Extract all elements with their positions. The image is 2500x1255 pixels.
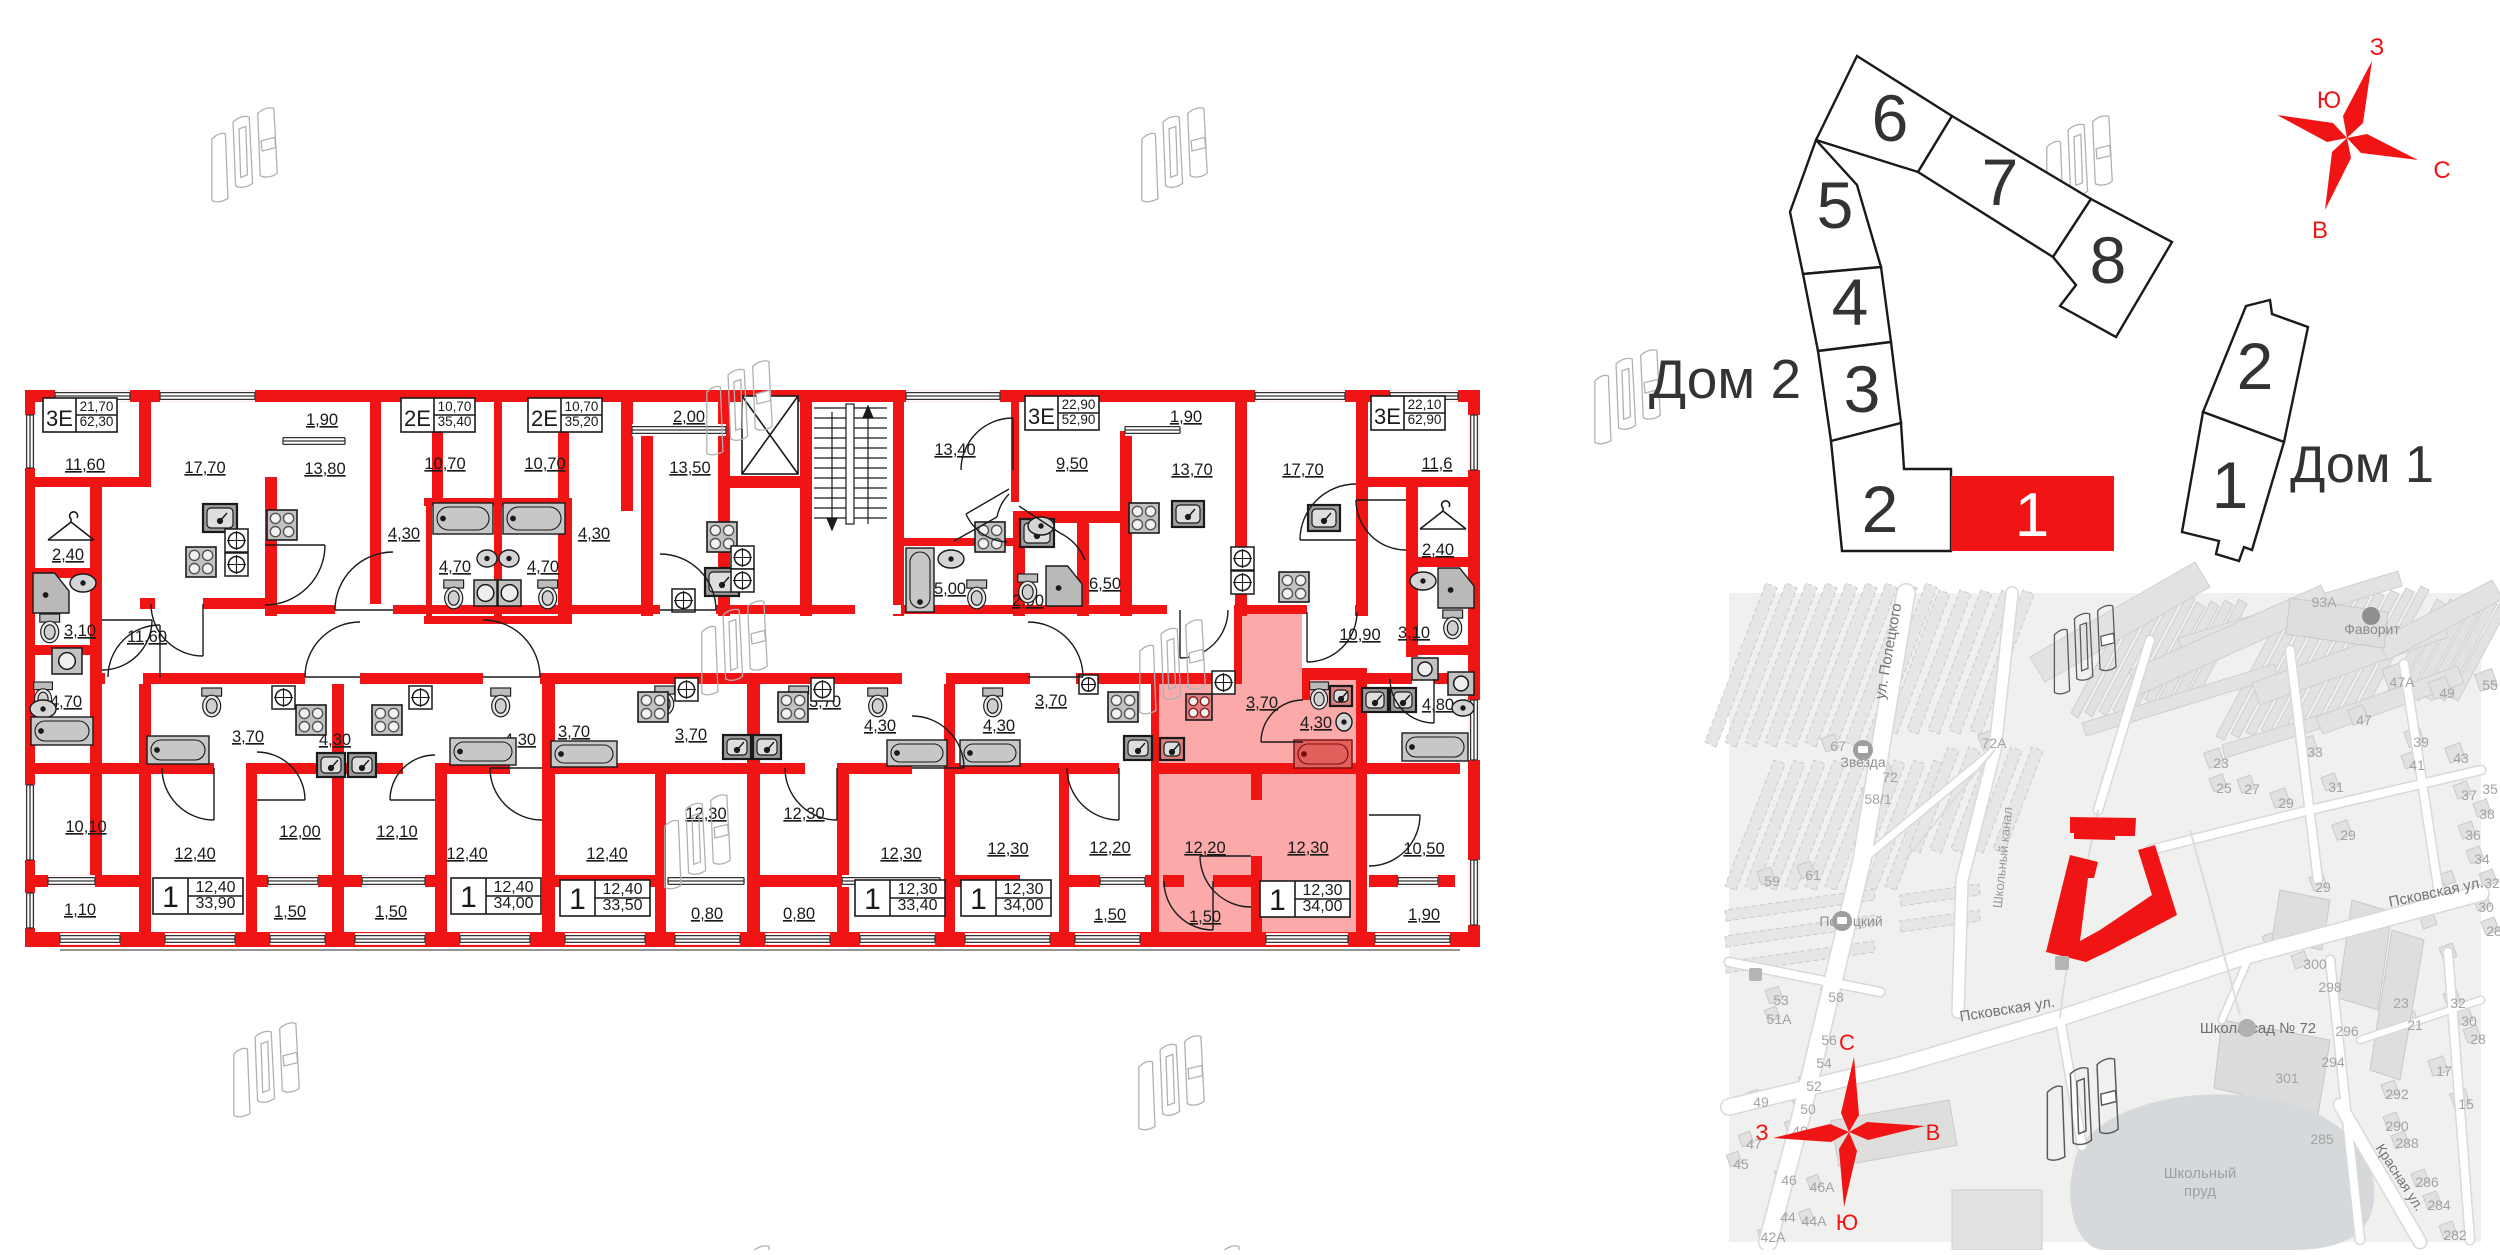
svg-text:93А: 93А [2312,594,2338,610]
svg-text:17,70: 17,70 [1282,461,1323,479]
svg-text:28: 28 [2486,923,2500,939]
svg-text:Дом 2: Дом 2 [1649,348,1801,410]
svg-text:1,50: 1,50 [1094,906,1126,924]
svg-text:С: С [1839,1030,1855,1055]
svg-text:5,00: 5,00 [934,580,966,598]
svg-text:56: 56 [1821,1032,1837,1048]
svg-text:46: 46 [1781,1172,1797,1188]
svg-text:25: 25 [2216,780,2232,796]
svg-text:1: 1 [460,881,477,914]
svg-text:1,90: 1,90 [306,411,338,429]
svg-text:Школа-сад № 72: Школа-сад № 72 [2200,1020,2316,1037]
svg-text:1,90: 1,90 [1408,906,1440,924]
svg-text:10,70: 10,70 [424,455,465,473]
svg-text:298: 298 [2318,979,2342,995]
svg-text:50: 50 [1800,1101,1816,1117]
svg-text:4,30: 4,30 [1300,714,1332,732]
svg-text:10,70: 10,70 [438,399,472,414]
svg-text:58: 58 [1828,989,1844,1005]
svg-text:12,40: 12,40 [602,881,642,898]
svg-text:47А: 47А [2390,674,2416,690]
svg-text:3,70: 3,70 [558,723,590,741]
svg-text:22,10: 22,10 [1408,397,1442,412]
svg-text:43: 43 [2453,750,2469,766]
svg-text:С: С [2433,157,2450,184]
svg-text:292: 292 [2385,1086,2409,1102]
svg-text:286: 286 [2415,1174,2439,1190]
svg-text:33: 33 [2307,744,2323,760]
svg-text:72: 72 [1882,769,1898,785]
svg-text:7: 7 [1982,145,2019,219]
svg-text:27: 27 [2244,781,2260,797]
svg-text:294: 294 [2321,1054,2345,1070]
svg-text:61: 61 [1805,867,1821,883]
svg-text:290: 290 [2385,1118,2409,1134]
svg-text:1,50: 1,50 [274,903,306,921]
svg-text:Ю: Ю [1836,1210,1858,1235]
svg-text:46А: 46А [1810,1179,1836,1195]
svg-text:12,00: 12,00 [279,823,320,841]
svg-text:23: 23 [2393,995,2409,1011]
svg-text:21: 21 [2407,1017,2423,1033]
svg-text:22,90: 22,90 [1062,397,1096,412]
svg-text:34,00: 34,00 [1302,898,1342,915]
svg-text:1: 1 [569,883,586,916]
svg-text:Школьный: Школьный [2164,1165,2237,1182]
svg-text:3Е: 3Е [1028,404,1055,429]
svg-text:62,30: 62,30 [80,414,114,429]
svg-text:11,60: 11,60 [65,456,105,474]
svg-text:35,20: 35,20 [565,414,599,429]
svg-text:17: 17 [2436,1063,2452,1079]
svg-text:10,50: 10,50 [1403,840,1444,858]
svg-text:288: 288 [2395,1135,2419,1151]
svg-text:29: 29 [2315,879,2331,895]
svg-text:54: 54 [1816,1055,1832,1071]
svg-text:21,70: 21,70 [80,399,114,414]
svg-text:2Е: 2Е [404,406,431,431]
svg-text:29: 29 [2340,827,2356,843]
svg-text:12,40: 12,40 [174,845,215,863]
svg-text:29: 29 [2278,795,2294,811]
svg-text:45: 45 [1733,1156,1749,1172]
svg-text:72А: 72А [1982,735,2008,751]
svg-text:41: 41 [2409,757,2425,773]
svg-text:10,10: 10,10 [65,818,106,836]
svg-text:2: 2 [2237,329,2274,403]
svg-text:12,40: 12,40 [586,845,627,863]
svg-text:36: 36 [2465,827,2481,843]
svg-text:1,50: 1,50 [1189,908,1221,926]
svg-text:1,90: 1,90 [1170,408,1202,426]
svg-text:62,90: 62,90 [1408,412,1442,427]
svg-text:11,6: 11,6 [1422,455,1453,473]
svg-text:3,70: 3,70 [1246,694,1278,712]
svg-text:3,10: 3,10 [1398,624,1430,642]
svg-text:8: 8 [2090,223,2127,297]
svg-text:3,70: 3,70 [232,728,264,746]
svg-text:3,70: 3,70 [1035,692,1067,710]
svg-text:12,20: 12,20 [1184,839,1225,857]
svg-text:42А: 42А [1761,1229,1787,1245]
svg-text:53: 53 [1773,992,1789,1008]
svg-text:2,40: 2,40 [52,546,84,564]
svg-text:28: 28 [2470,1031,2486,1047]
svg-text:3,70: 3,70 [675,726,707,744]
svg-text:13,50: 13,50 [669,459,710,477]
svg-text:301: 301 [2275,1070,2299,1086]
svg-text:3Е: 3Е [1374,404,1401,429]
svg-text:44: 44 [1780,1209,1796,1225]
svg-text:31: 31 [2328,779,2344,795]
svg-text:2: 2 [1862,472,1899,546]
svg-text:4,30: 4,30 [864,717,896,735]
svg-text:52,90: 52,90 [1062,412,1096,427]
svg-text:12,40: 12,40 [493,879,533,896]
svg-text:13,70: 13,70 [1171,461,1212,479]
svg-text:51А: 51А [1767,1011,1793,1027]
svg-text:13,80: 13,80 [304,460,345,478]
svg-text:17,70: 17,70 [184,459,225,477]
svg-text:52: 52 [1806,1078,1822,1094]
svg-text:1: 1 [970,883,987,916]
svg-text:0,80: 0,80 [783,905,815,923]
svg-text:35,40: 35,40 [438,414,472,429]
svg-text:12,10: 12,10 [376,823,417,841]
svg-text:В: В [2312,217,2328,244]
svg-text:0,80: 0,80 [691,905,723,923]
svg-text:3Е: 3Е [46,406,73,431]
svg-text:49: 49 [2439,685,2455,701]
svg-text:44А: 44А [1802,1213,1828,1229]
svg-text:12,40: 12,40 [446,845,487,863]
svg-text:4: 4 [1832,265,1869,339]
svg-text:34,00: 34,00 [493,895,533,912]
svg-text:12,20: 12,20 [1089,839,1130,857]
svg-text:4,80: 4,80 [1422,696,1454,714]
svg-text:33,90: 33,90 [195,895,235,912]
svg-text:300: 300 [2303,956,2327,972]
svg-text:12,30: 12,30 [1003,881,1043,898]
svg-text:30: 30 [2461,1013,2477,1029]
svg-text:10,70: 10,70 [524,455,565,473]
svg-text:В: В [1926,1120,1941,1145]
svg-text:4,70: 4,70 [439,558,471,576]
svg-text:284: 284 [2427,1197,2451,1213]
svg-text:З: З [2370,34,2385,61]
svg-text:67: 67 [1830,738,1846,754]
svg-text:1: 1 [1269,884,1286,917]
svg-text:Дом 1: Дом 1 [2290,436,2434,494]
svg-text:12,40: 12,40 [195,879,235,896]
svg-text:1: 1 [162,881,179,914]
svg-text:5: 5 [1817,168,1854,242]
svg-text:2,00: 2,00 [673,408,705,426]
svg-text:12,30: 12,30 [1287,839,1328,857]
svg-text:33,50: 33,50 [602,897,642,914]
svg-text:15: 15 [2458,1096,2474,1112]
svg-text:35: 35 [2482,781,2498,797]
svg-text:3: 3 [1844,352,1881,426]
svg-text:49: 49 [1753,1094,1769,1110]
svg-text:6,50: 6,50 [1089,575,1121,593]
svg-text:Ю: Ю [2317,87,2341,114]
svg-text:1,50: 1,50 [375,903,407,921]
svg-text:4,30: 4,30 [983,717,1015,735]
svg-text:1: 1 [2212,448,2249,522]
svg-text:10,70: 10,70 [565,399,599,414]
svg-text:9,50: 9,50 [1056,455,1088,473]
svg-text:4,70: 4,70 [527,558,559,576]
svg-text:1: 1 [2015,481,2049,550]
svg-text:10,90: 10,90 [1339,626,1380,644]
svg-text:13,40: 13,40 [934,441,975,459]
svg-text:38: 38 [2479,806,2495,822]
svg-text:2Е: 2Е [531,406,558,431]
svg-text:59: 59 [1764,873,1780,889]
svg-text:282: 282 [2443,1227,2467,1243]
svg-text:285: 285 [2310,1131,2334,1147]
svg-text:296: 296 [2335,1023,2359,1039]
svg-text:23: 23 [2213,755,2229,771]
svg-text:32: 32 [2450,995,2466,1011]
svg-text:12,30: 12,30 [1302,882,1342,899]
svg-text:55: 55 [2482,677,2498,693]
svg-text:3,10: 3,10 [64,622,96,640]
svg-text:4,30: 4,30 [388,525,420,543]
svg-text:2,40: 2,40 [1422,541,1454,559]
svg-text:1,10: 1,10 [64,901,96,919]
svg-text:58/1: 58/1 [1864,791,1891,807]
svg-text:З: З [1755,1120,1768,1145]
svg-text:32: 32 [2484,875,2500,891]
svg-text:30: 30 [2478,899,2494,915]
svg-text:39: 39 [2413,734,2429,750]
svg-text:47: 47 [2356,712,2372,728]
svg-text:4,30: 4,30 [578,525,610,543]
svg-text:6: 6 [1872,81,1909,155]
svg-text:12,30: 12,30 [880,845,921,863]
svg-text:37: 37 [2461,787,2477,803]
svg-text:34: 34 [2474,851,2490,867]
svg-text:1: 1 [864,883,881,916]
svg-text:33,40: 33,40 [897,897,937,914]
svg-text:12,30: 12,30 [987,840,1028,858]
svg-text:34,00: 34,00 [1003,897,1043,914]
svg-text:пруд: пруд [2184,1183,2216,1200]
svg-text:12,30: 12,30 [897,881,937,898]
